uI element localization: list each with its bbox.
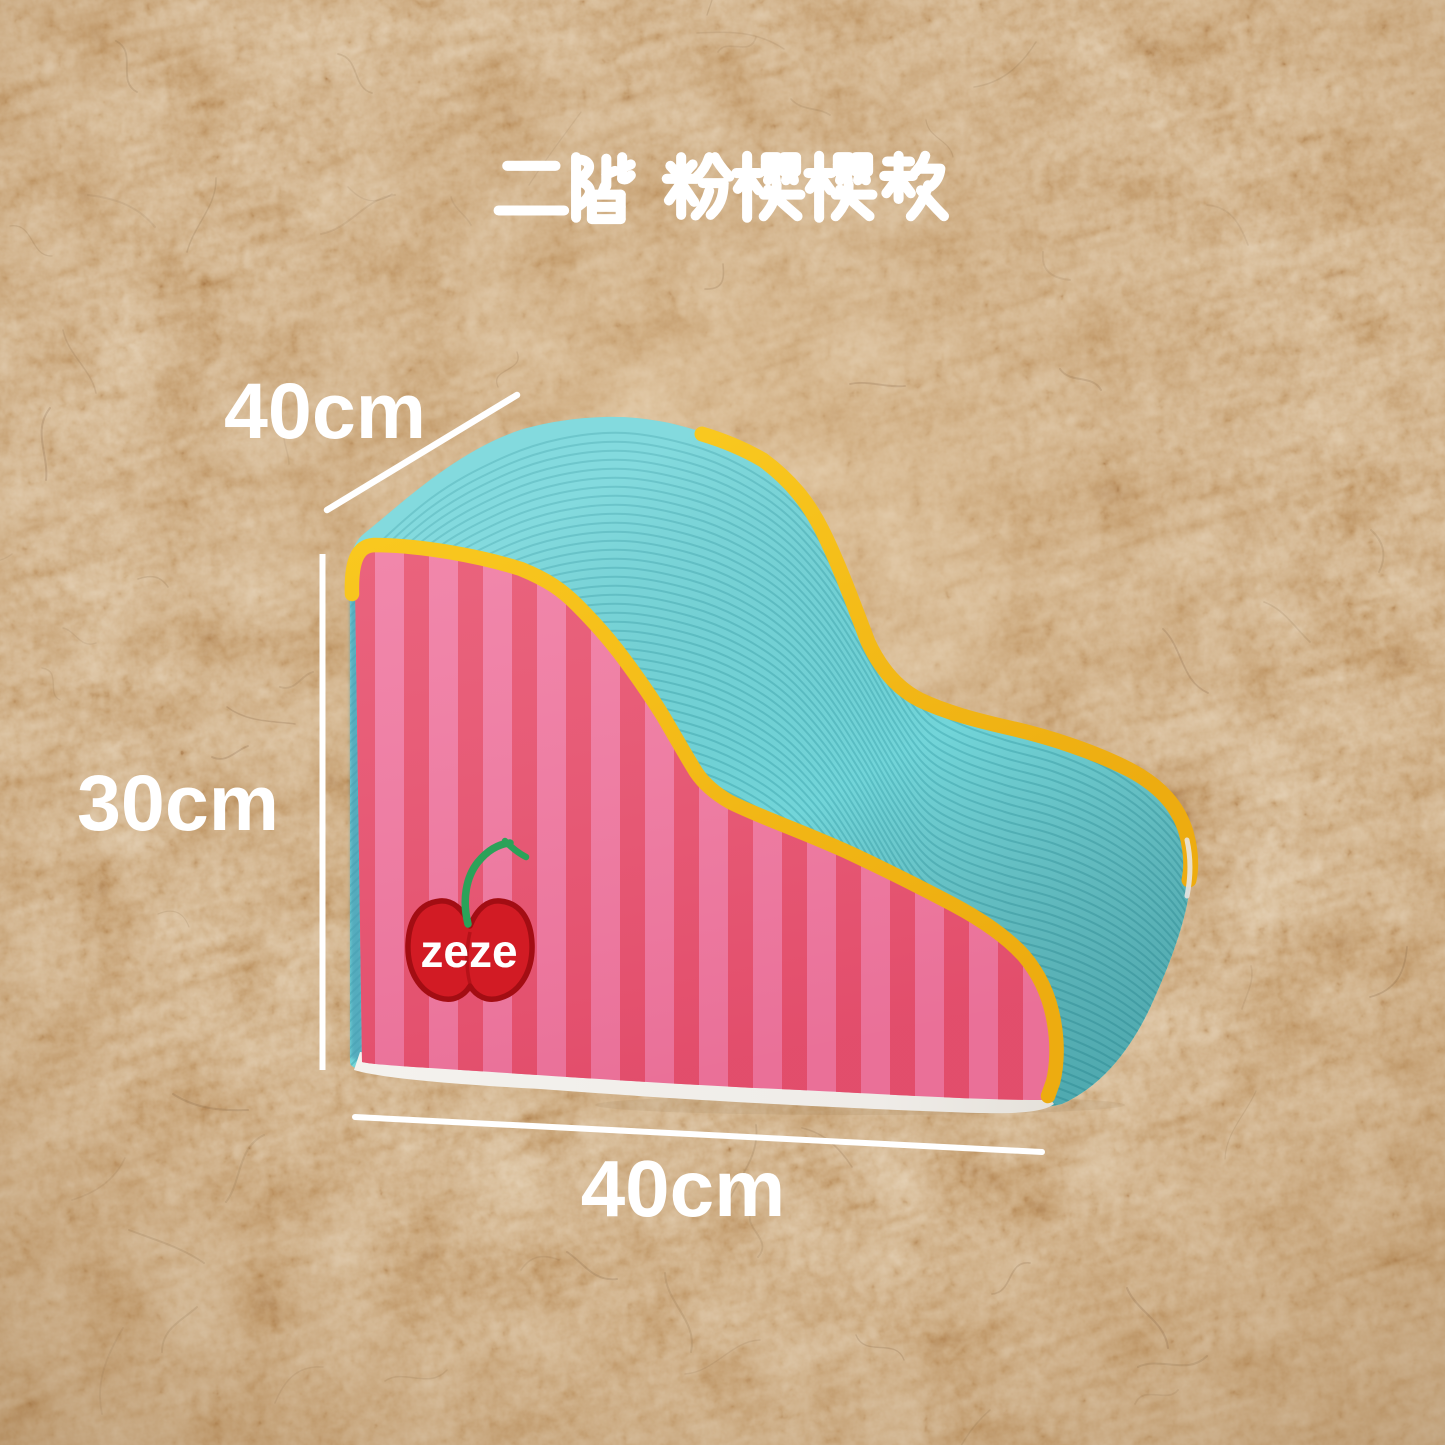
svg-text:40cm: 40cm bbox=[224, 366, 426, 455]
svg-text:30cm: 30cm bbox=[77, 758, 279, 847]
svg-text:zeze: zeze bbox=[420, 925, 517, 977]
svg-text:40cm: 40cm bbox=[581, 1144, 786, 1233]
